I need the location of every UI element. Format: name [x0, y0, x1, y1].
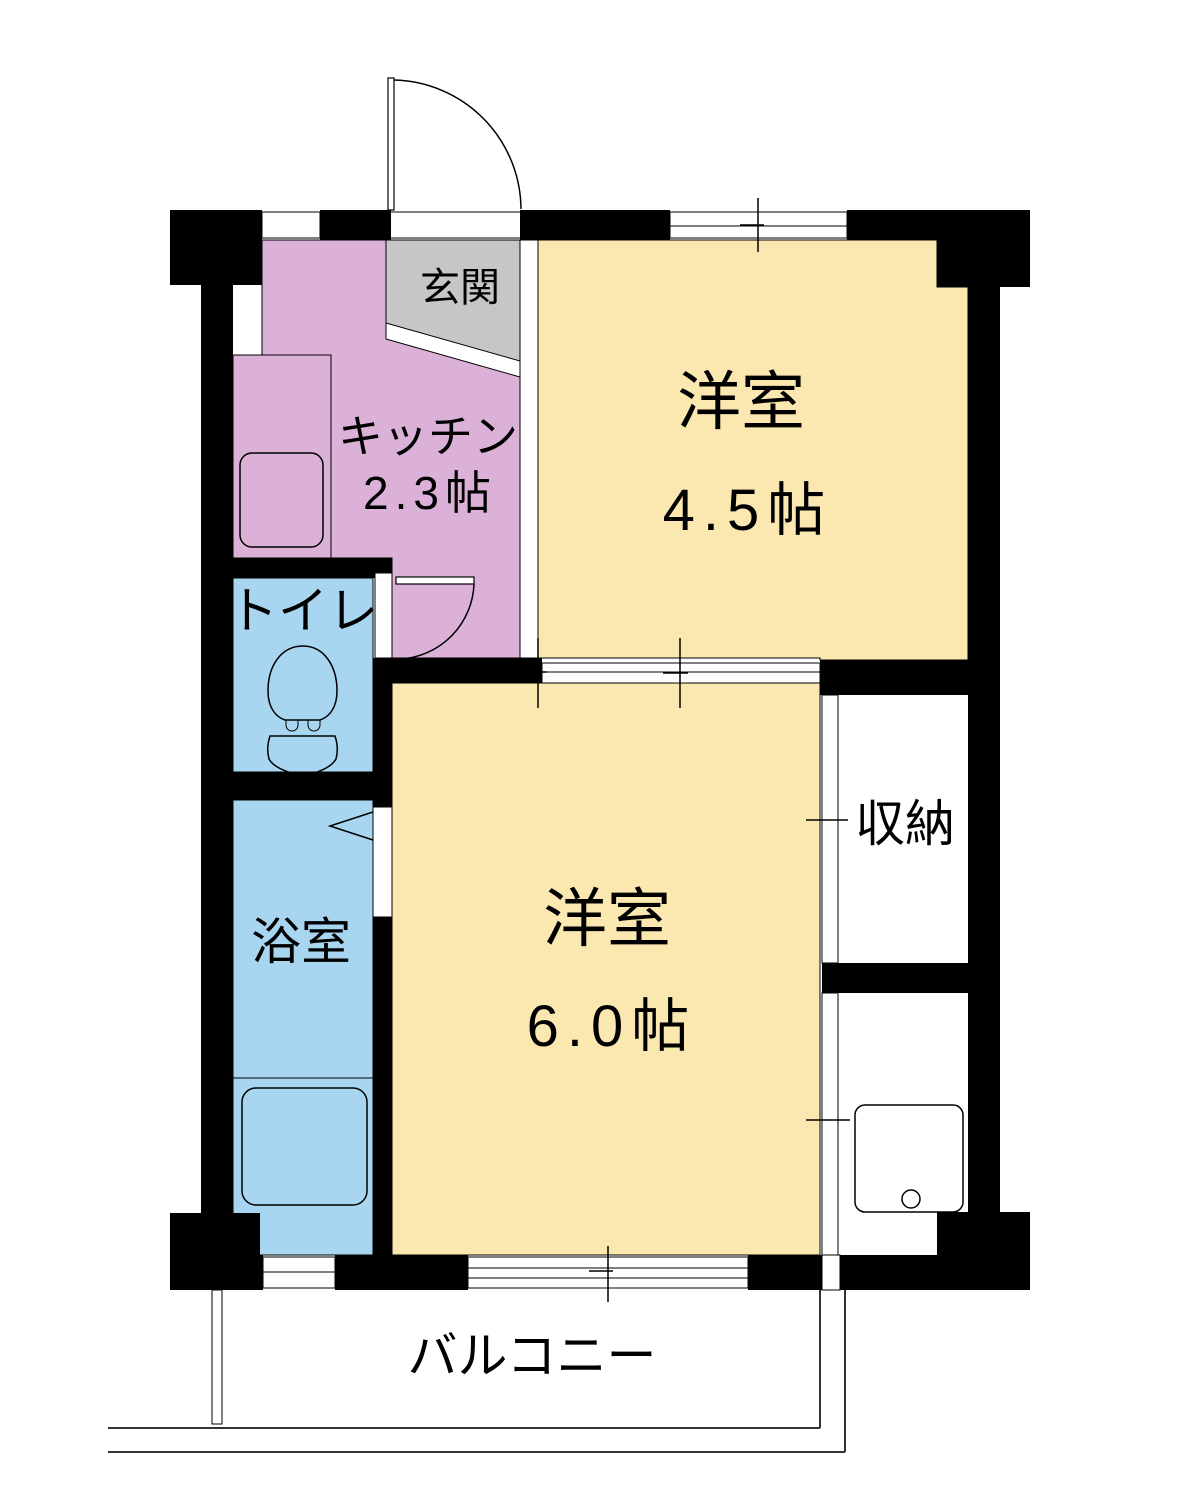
western-room-45-floor: [538, 240, 968, 660]
balcony-left-rail: [212, 1290, 222, 1424]
laundry-drain-icon: [902, 1190, 920, 1208]
wall-kitchen-toilet: [203, 558, 375, 578]
bathroom-floor: [233, 800, 373, 1255]
toilet-door-leaf: [396, 577, 474, 584]
western-room-60-label: 洋室: [543, 883, 671, 955]
western-room-45-size-label: 4.5帖: [663, 478, 834, 543]
wall-bottom-b: [335, 1255, 468, 1290]
wall-kitchen-room45: [520, 240, 538, 658]
wall-top-a: [320, 210, 391, 240]
bathroom-door-opening: [373, 807, 392, 917]
entrance-opening: [391, 211, 520, 239]
wall-bottom-a: [233, 1255, 263, 1290]
entrance-door-swing-arc: [394, 80, 521, 209]
western-room-60-floor: [392, 683, 820, 1255]
kitchen-sink: [240, 453, 323, 547]
kitchen-size-label: 2.3帖: [363, 467, 497, 519]
wall-bottom-c: [748, 1255, 1030, 1290]
storage-label: 収納: [855, 796, 955, 852]
balcony-label: バルコニー: [408, 1328, 657, 1384]
laundry-sliding-door: [822, 993, 838, 1255]
storage-sliding-door: [822, 695, 838, 963]
bathroom-label: 浴室: [251, 914, 351, 970]
balcony-divider-pass: [822, 1255, 840, 1290]
wall-top-right-block: [937, 240, 1030, 287]
wall-right: [968, 287, 1000, 1212]
wall-top-c: [847, 210, 1030, 240]
wall-top-b: [520, 210, 670, 240]
wall-partition-left-block: [392, 658, 542, 683]
wall-left: [201, 285, 233, 1213]
wall-toilet-door-stub: [375, 558, 392, 573]
wall-storage-laundry: [822, 963, 968, 993]
toilet-label: トイレ: [228, 583, 378, 639]
room-floors: [233, 240, 968, 1255]
floor-plan: 玄関 キッチン 2.3帖 洋室 4.5帖 洋室 6.0帖 トイレ 浴室 収納 バ…: [0, 0, 1200, 1499]
wall-room45-storage: [820, 660, 968, 695]
wall-top-left-block: [170, 210, 262, 285]
wall-bathroom-right-lower: [373, 917, 392, 1255]
western-room-60-size-label: 6.0帖: [527, 994, 698, 1059]
wall-toilet-bathroom: [203, 772, 392, 800]
western-room-45-label: 洋室: [677, 366, 805, 438]
kitchen-label: キッチン: [338, 411, 518, 462]
entrance-door: [388, 78, 521, 239]
kitchen-top-window: [262, 212, 320, 238]
wall-bathroom-right-upper: [373, 658, 392, 807]
genkan-label: 玄関: [420, 266, 500, 310]
entrance-door-leaf: [388, 78, 394, 210]
